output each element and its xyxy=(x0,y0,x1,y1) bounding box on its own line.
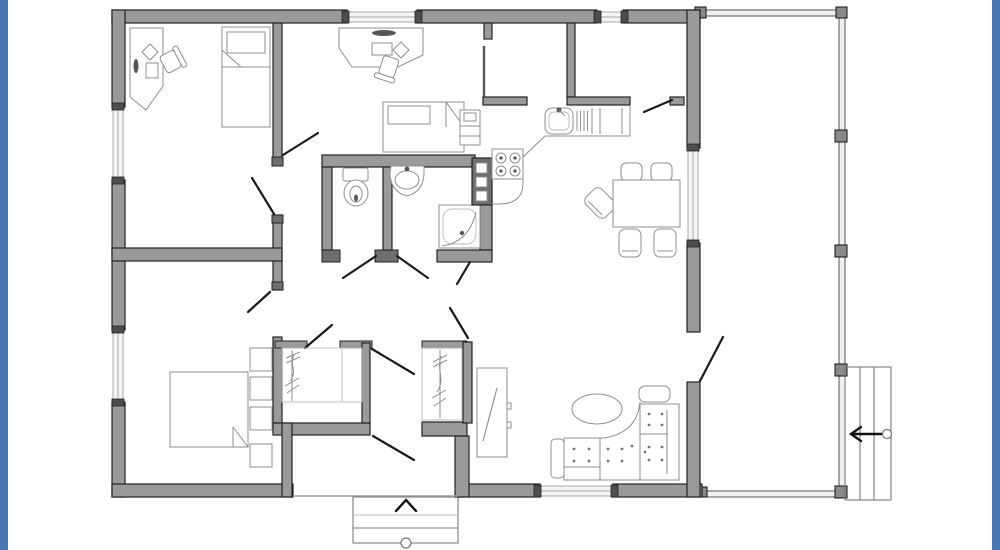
dining-chair xyxy=(619,229,641,257)
window-living-bottom xyxy=(534,485,618,497)
wc-door xyxy=(343,256,376,278)
bedroom-desk-paper xyxy=(372,43,392,55)
master-bedroom xyxy=(170,348,272,467)
entry-up-arrow xyxy=(396,500,416,511)
office-desk-paper xyxy=(146,63,158,78)
office-single-bed xyxy=(222,27,270,127)
hall-door xyxy=(373,436,414,460)
floor-plan-canvas xyxy=(0,0,1000,550)
dining-chair xyxy=(621,163,642,181)
bathroom-block xyxy=(343,158,492,248)
deck-rail-bottom xyxy=(702,491,845,497)
small-bedroom xyxy=(339,28,480,152)
corner-shower xyxy=(439,205,480,248)
window-left-upper xyxy=(112,103,124,184)
office-desk-lamp xyxy=(134,59,139,73)
bedside-shelf xyxy=(460,110,480,145)
stove xyxy=(492,149,523,179)
tall-mirror-cabinet xyxy=(477,368,511,457)
office-door-leaf xyxy=(252,178,274,214)
wash-basin xyxy=(390,166,424,196)
dining-chair xyxy=(651,163,672,181)
deck-door xyxy=(700,337,723,381)
kitchen-sink xyxy=(545,108,573,135)
utility-column xyxy=(472,158,492,205)
entry-porch xyxy=(353,497,458,548)
bedroom-single-bed xyxy=(383,102,464,152)
closet2-door xyxy=(450,308,468,338)
toilet xyxy=(343,168,368,206)
closet1-door-right xyxy=(372,349,414,374)
storage-room-door xyxy=(644,100,672,112)
deck-post xyxy=(836,7,847,18)
dining-chair xyxy=(654,229,676,257)
office-door xyxy=(283,133,318,155)
double-bed xyxy=(170,372,248,447)
washroom-door xyxy=(397,256,428,278)
deck-post xyxy=(835,245,847,257)
dining-area xyxy=(582,163,680,257)
closet1-door-left xyxy=(305,325,332,348)
sink-drainer xyxy=(577,108,622,134)
frame-right-bar xyxy=(992,0,1000,550)
deck-post xyxy=(835,130,847,142)
closet-2 xyxy=(422,348,462,420)
dining-table xyxy=(613,180,680,227)
deck xyxy=(695,7,892,500)
floor-plan-page xyxy=(0,0,1000,550)
bedroom-desk-item xyxy=(372,30,396,36)
master-bedroom-door xyxy=(248,292,270,312)
window-top-left xyxy=(342,11,422,23)
deck-stairs xyxy=(845,367,892,500)
shower-door xyxy=(457,262,470,284)
stairs-arrow-origin xyxy=(883,430,892,439)
entry-arrow-origin xyxy=(401,538,411,548)
kitchen xyxy=(492,105,630,204)
office-room xyxy=(130,27,270,127)
frame-left-bar xyxy=(0,0,8,550)
closet-1 xyxy=(282,348,362,402)
dining-chair xyxy=(582,185,617,220)
window-dining-right xyxy=(687,144,699,247)
deck-rail-top xyxy=(700,10,840,16)
oval-coffee-table xyxy=(572,394,622,424)
headboard-shelves xyxy=(250,348,272,467)
window-left-lower xyxy=(112,326,124,406)
living-room xyxy=(477,368,679,480)
window-top-right-small xyxy=(594,11,628,23)
